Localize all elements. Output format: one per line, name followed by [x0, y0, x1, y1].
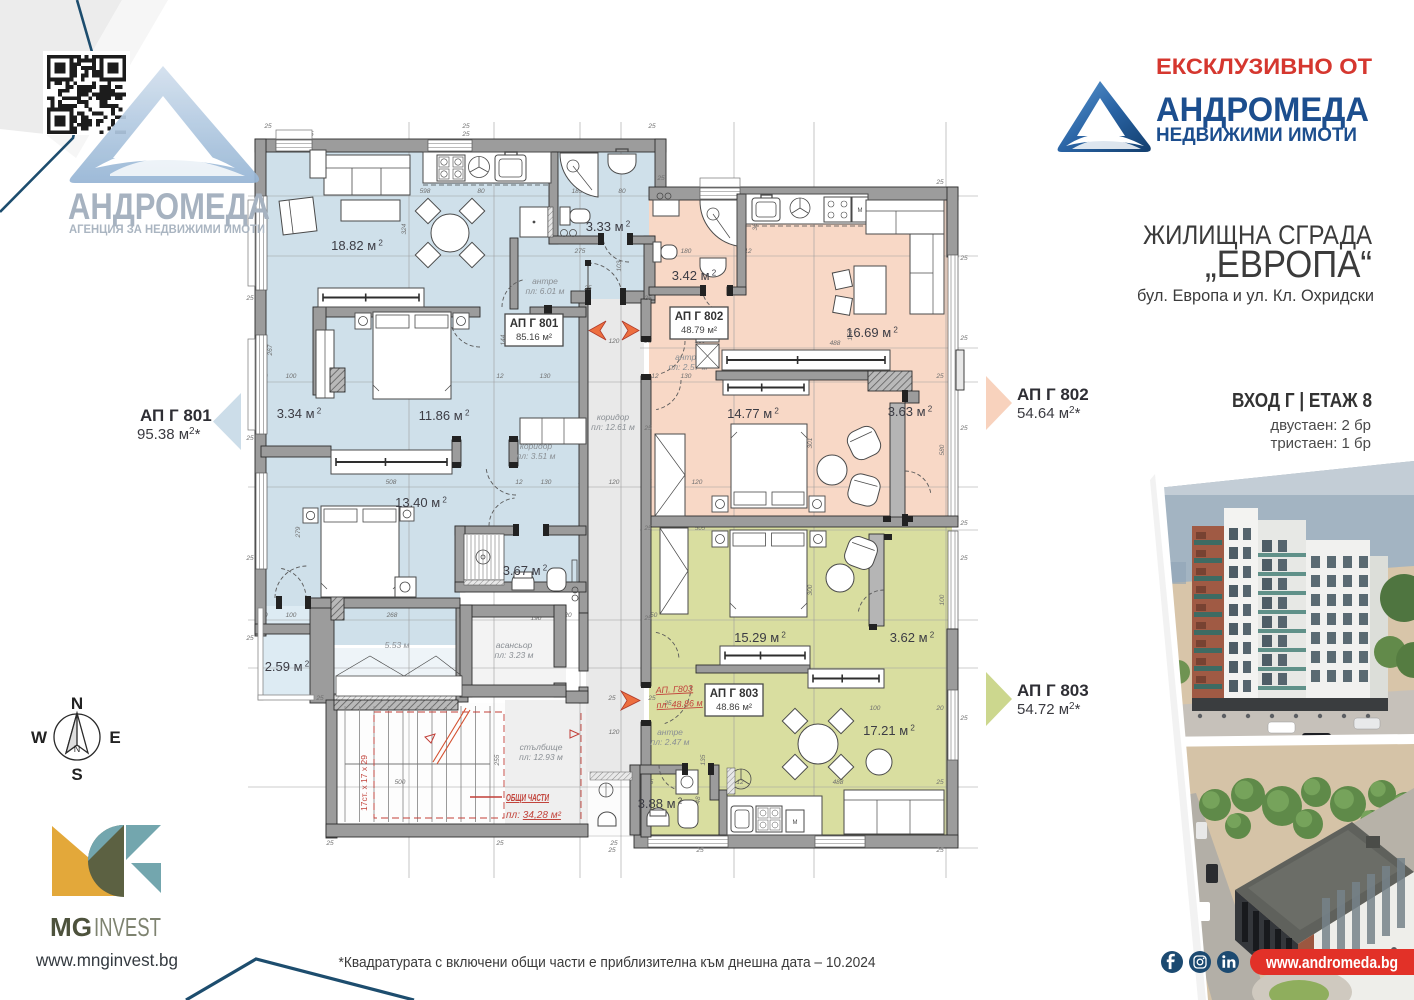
svg-text:279: 279: [295, 526, 302, 538]
svg-text:АП Г 801: АП Г 801: [510, 318, 559, 330]
svg-text:антре: антре: [657, 727, 683, 737]
svg-text:120: 120: [609, 479, 620, 486]
svg-text:130: 130: [541, 479, 552, 486]
svg-text:пл: 12.61 м: пл: 12.61 м: [591, 422, 635, 432]
svg-text:48.86 м²: 48.86 м²: [716, 702, 752, 713]
svg-text:17ст. х 17 х 29: 17ст. х 17 х 29: [359, 755, 369, 811]
svg-text:13.40 м 2: 13.40 м 2: [395, 495, 447, 510]
svg-text:508: 508: [386, 479, 397, 486]
svg-text:N: N: [71, 694, 83, 713]
svg-text:E: E: [109, 728, 120, 747]
svg-text:пл: 6.01 м: пл: 6.01 м: [526, 286, 565, 296]
svg-text:25: 25: [959, 520, 968, 527]
svg-text:25: 25: [643, 425, 652, 432]
svg-text:АП Г 803: АП Г 803: [1017, 681, 1089, 700]
svg-text:25: 25: [315, 695, 324, 702]
svg-text:пл: 2.47 м: пл: 2.47 м: [651, 737, 690, 747]
svg-text:25: 25: [643, 615, 652, 622]
svg-text:180: 180: [681, 248, 692, 255]
svg-text:20: 20: [935, 705, 944, 712]
svg-text:асансьор: асансьор: [496, 640, 533, 650]
svg-text:25: 25: [461, 131, 470, 138]
svg-text:488: 488: [833, 779, 844, 786]
svg-text:25: 25: [245, 635, 254, 642]
svg-text:25: 25: [607, 695, 616, 702]
svg-text:135: 135: [700, 754, 707, 765]
svg-text:25: 25: [245, 555, 254, 562]
svg-text:18.82 м 2: 18.82 м 2: [331, 238, 383, 253]
svg-text:12: 12: [651, 373, 659, 380]
svg-text:25: 25: [959, 335, 968, 342]
svg-text:130: 130: [681, 373, 692, 380]
svg-text:16.69 м 2: 16.69 м 2: [846, 325, 898, 340]
svg-text:MG: MG: [50, 912, 92, 942]
svg-text:25: 25: [647, 695, 656, 702]
svg-text:антре: антре: [532, 276, 558, 286]
svg-text:15.29 м 2: 15.29 м 2: [734, 630, 786, 645]
svg-text:S: S: [71, 765, 82, 784]
svg-text:W: W: [31, 728, 48, 747]
svg-text:АП Г 803: АП Г 803: [710, 688, 759, 700]
svg-text:80: 80: [618, 188, 626, 195]
svg-text:25: 25: [325, 840, 334, 847]
svg-text:25: 25: [935, 373, 944, 380]
svg-text:25: 25: [959, 555, 968, 562]
svg-text:АП Г 801: АП Г 801: [140, 406, 212, 425]
svg-text:25: 25: [935, 779, 944, 786]
svg-text:17.21 м 2: 17.21 м 2: [863, 723, 915, 738]
svg-text:*Квадратурата с включени общи: *Квадратурата с включени общи части е пр…: [339, 955, 876, 971]
svg-text:14.77 м 2: 14.77 м 2: [727, 406, 779, 421]
svg-text:25: 25: [461, 123, 470, 130]
svg-text:двустаен: 2 бр: двустаен: 2 бр: [1270, 417, 1371, 434]
svg-text:275: 275: [574, 248, 586, 255]
svg-text:80: 80: [477, 188, 485, 195]
svg-text:пл: 12.93 м: пл: 12.93 м: [519, 752, 563, 762]
svg-text:25: 25: [959, 715, 968, 722]
svg-text:130: 130: [540, 373, 551, 380]
svg-text:103: 103: [616, 260, 623, 271]
svg-text:25: 25: [607, 847, 616, 854]
svg-text:АНДРОМЕДА: АНДРОМЕДА: [68, 186, 270, 227]
svg-text:267: 267: [267, 344, 274, 356]
svg-text:пл: 3.51 м: пл: 3.51 м: [517, 451, 556, 461]
svg-text:25: 25: [935, 179, 944, 186]
svg-text:300: 300: [807, 584, 814, 595]
svg-text:120: 120: [609, 729, 620, 736]
svg-text:12: 12: [496, 373, 504, 380]
svg-text:25: 25: [959, 425, 968, 432]
svg-text:324: 324: [401, 223, 408, 234]
svg-text:ОБЩИ ЧАСТИ: ОБЩИ ЧАСТИ: [506, 793, 549, 804]
svg-text:48.79 м²: 48.79 м²: [681, 325, 717, 336]
svg-text:тристаен: 1 бр: тристаен: 1 бр: [1270, 435, 1371, 452]
svg-text:www.andromeda.bg: www.andromeda.bg: [1265, 953, 1398, 972]
svg-text:НЕДВИЖИМИ ИМОТИ: НЕДВИЖИМИ ИМОТИ: [1156, 125, 1357, 146]
svg-text:120: 120: [692, 479, 703, 486]
svg-text:12: 12: [515, 479, 523, 486]
svg-text:25: 25: [643, 295, 652, 302]
svg-text:25: 25: [263, 123, 272, 130]
svg-text:11.86 м 2: 11.86 м 2: [419, 408, 470, 423]
svg-text:488: 488: [830, 340, 841, 347]
svg-text:25: 25: [495, 840, 504, 847]
svg-text:АГЕНЦИЯ ЗА НЕДВИЖИМИ ИМОТИ: АГЕНЦИЯ ЗА НЕДВИЖИМИ ИМОТИ: [69, 224, 265, 236]
svg-text:пл: 3.23 м: пл: 3.23 м: [495, 650, 534, 660]
svg-text:25: 25: [656, 175, 665, 182]
svg-text:25: 25: [959, 255, 968, 262]
svg-text:25: 25: [695, 847, 704, 854]
svg-text:N: N: [74, 744, 81, 754]
svg-text:стълбище: стълбище: [520, 742, 563, 752]
svg-text:301: 301: [807, 437, 814, 448]
svg-text:268: 268: [386, 612, 398, 619]
svg-text:500: 500: [395, 779, 406, 786]
svg-text:120: 120: [609, 338, 620, 345]
svg-text:INVEST: INVEST: [94, 912, 161, 942]
svg-text:85.16 м²: 85.16 м²: [516, 332, 552, 343]
svg-text:100: 100: [870, 705, 881, 712]
svg-text:580: 580: [939, 444, 946, 455]
svg-text:„ЕВРОПА“: „ЕВРОПА“: [1205, 244, 1372, 286]
svg-text:АНДРОМЕДА: АНДРОМЕДА: [1156, 91, 1369, 129]
svg-text:25: 25: [609, 840, 618, 847]
svg-text:АП. Г803: АП. Г803: [654, 683, 693, 695]
svg-text:25: 25: [583, 285, 592, 292]
svg-text:25: 25: [647, 123, 656, 130]
svg-text:100: 100: [286, 612, 297, 619]
svg-text:М: М: [858, 208, 863, 214]
svg-text:100: 100: [286, 373, 297, 380]
svg-text:598: 598: [420, 188, 431, 195]
svg-text:коридор: коридор: [597, 412, 630, 422]
svg-text:ВХОД Г | ЕТАЖ 8: ВХОД Г | ЕТАЖ 8: [1232, 390, 1372, 412]
svg-text:25: 25: [245, 295, 254, 302]
svg-text:25: 25: [245, 435, 254, 442]
svg-text:АП Г 802: АП Г 802: [1017, 385, 1089, 404]
svg-text:www.mnginvest.bg: www.mnginvest.bg: [35, 950, 178, 970]
svg-text:100: 100: [939, 594, 946, 605]
svg-text:бул. Европа и ул. Кл. Охридски: бул. Европа и ул. Кл. Охридски: [1137, 287, 1374, 305]
svg-text:25: 25: [935, 847, 944, 854]
svg-text:255: 255: [494, 754, 501, 766]
svg-text:М: М: [793, 820, 798, 826]
svg-text:25: 25: [643, 525, 652, 532]
svg-text:АП Г 802: АП Г 802: [675, 311, 724, 323]
svg-text:пл: 34,28 м²: пл: 34,28 м²: [506, 810, 562, 821]
svg-text:ЕКСКЛУЗИВНО ОТ: ЕКСКЛУЗИВНО ОТ: [1156, 54, 1373, 79]
svg-text:5.53 м: 5.53 м: [385, 640, 410, 650]
